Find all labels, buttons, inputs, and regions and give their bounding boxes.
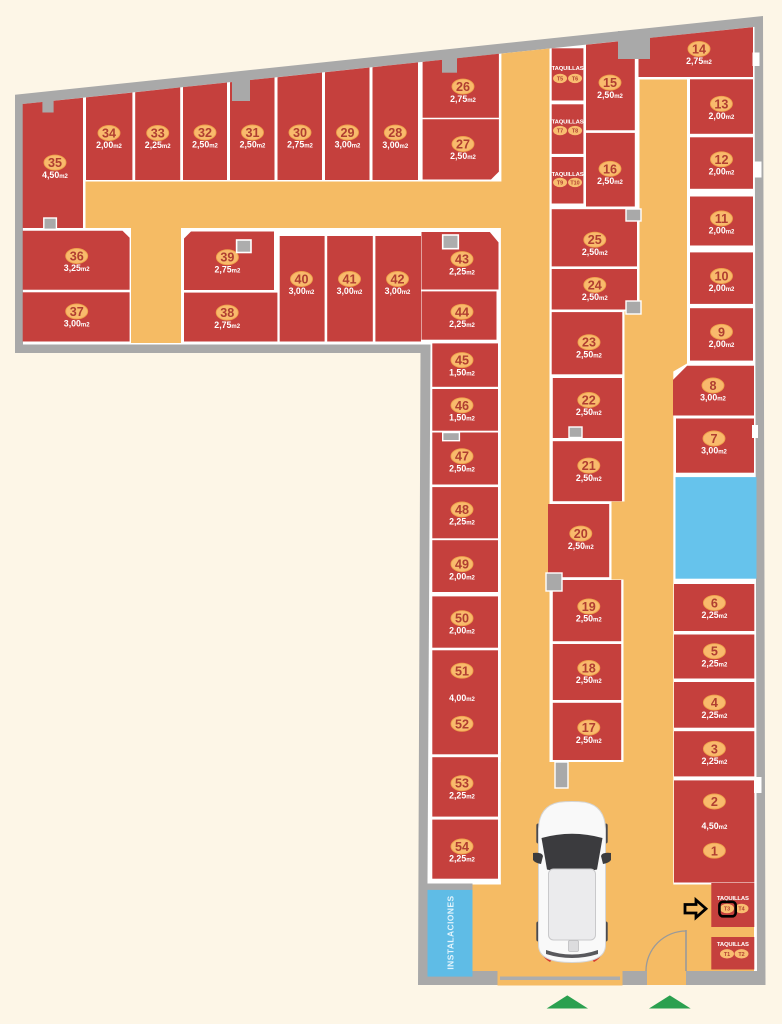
svg-text:18: 18 — [582, 662, 596, 676]
svg-text:48: 48 — [455, 503, 469, 517]
svg-text:INSTALACIONES: INSTALACIONES — [446, 895, 456, 969]
svg-text:T2: T2 — [738, 952, 744, 958]
svg-text:29: 29 — [340, 126, 354, 140]
svg-text:T1: T1 — [724, 952, 730, 958]
svg-text:50: 50 — [455, 612, 469, 626]
svg-text:31: 31 — [245, 126, 259, 140]
svg-text:27: 27 — [456, 138, 470, 152]
svg-text:T4: T4 — [738, 907, 744, 913]
svg-text:14: 14 — [692, 42, 706, 56]
svg-text:TAQUILLAS: TAQUILLAS — [717, 942, 749, 948]
svg-text:23: 23 — [582, 336, 596, 350]
svg-text:34: 34 — [102, 127, 116, 141]
svg-text:T8: T8 — [572, 129, 578, 135]
svg-text:T10: T10 — [570, 180, 579, 186]
svg-text:16: 16 — [603, 162, 617, 176]
svg-text:20: 20 — [574, 527, 588, 541]
svg-text:38: 38 — [220, 306, 234, 320]
svg-text:21: 21 — [582, 459, 596, 473]
svg-text:5: 5 — [711, 645, 718, 659]
svg-text:12: 12 — [714, 153, 728, 167]
svg-text:T7: T7 — [557, 129, 563, 135]
svg-text:6: 6 — [711, 596, 718, 610]
svg-text:54: 54 — [455, 840, 469, 854]
svg-text:41: 41 — [342, 273, 356, 287]
svg-text:3: 3 — [711, 742, 718, 756]
svg-text:24: 24 — [588, 278, 602, 292]
svg-text:44: 44 — [455, 305, 469, 319]
svg-text:TAQUILLAS: TAQUILLAS — [552, 120, 584, 126]
svg-text:TAQUILLAS: TAQUILLAS — [552, 66, 584, 72]
svg-text:10: 10 — [714, 270, 728, 284]
svg-text:4: 4 — [711, 696, 718, 710]
svg-text:40: 40 — [294, 273, 308, 287]
svg-text:45: 45 — [455, 354, 469, 368]
svg-text:T6: T6 — [572, 76, 578, 82]
svg-text:26: 26 — [456, 80, 470, 94]
svg-text:17: 17 — [582, 721, 596, 735]
svg-text:47: 47 — [455, 450, 469, 464]
svg-text:22: 22 — [582, 394, 596, 408]
svg-text:T5: T5 — [557, 76, 563, 82]
svg-text:8: 8 — [709, 379, 716, 393]
svg-text:49: 49 — [455, 558, 469, 572]
svg-text:7: 7 — [710, 432, 717, 446]
svg-text:13: 13 — [714, 97, 728, 111]
svg-text:11: 11 — [715, 212, 728, 226]
svg-text:35: 35 — [48, 156, 62, 170]
svg-text:36: 36 — [70, 250, 84, 264]
svg-text:52: 52 — [455, 717, 469, 731]
svg-text:53: 53 — [455, 777, 469, 791]
svg-text:9: 9 — [718, 325, 725, 339]
svg-text:15: 15 — [603, 76, 617, 90]
svg-text:32: 32 — [198, 126, 212, 140]
svg-text:1: 1 — [711, 844, 718, 858]
svg-text:37: 37 — [70, 305, 84, 319]
svg-text:28: 28 — [388, 126, 402, 140]
svg-text:T3: T3 — [724, 907, 730, 913]
svg-text:33: 33 — [151, 127, 165, 141]
svg-text:2: 2 — [711, 795, 718, 809]
svg-text:39: 39 — [220, 251, 234, 265]
svg-text:46: 46 — [455, 399, 469, 413]
svg-text:42: 42 — [390, 273, 404, 287]
svg-text:30: 30 — [293, 126, 307, 140]
svg-text:25: 25 — [588, 233, 602, 247]
svg-text:43: 43 — [455, 253, 469, 267]
svg-text:51: 51 — [455, 664, 469, 678]
svg-text:TAQUILLAS: TAQUILLAS — [552, 172, 584, 178]
svg-text:T9: T9 — [557, 180, 563, 186]
svg-text:19: 19 — [582, 600, 596, 614]
